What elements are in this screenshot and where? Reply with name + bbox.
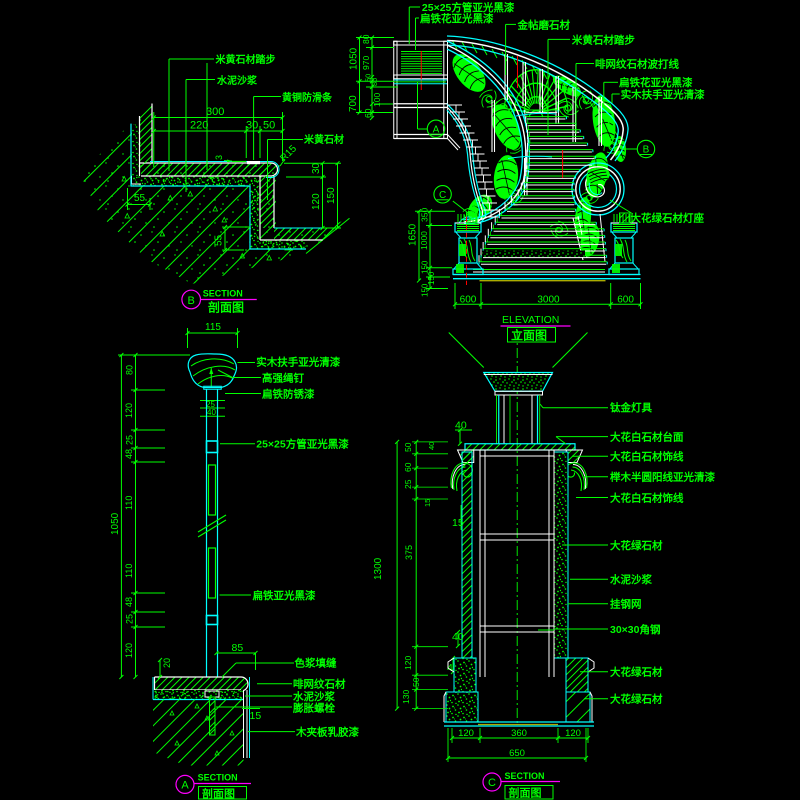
svg-text:60: 60 [363,108,373,118]
svg-text:米黄石材: 米黄石材 [304,133,344,146]
svg-text:40: 40 [207,408,216,417]
svg-text:啡网纹石材: 啡网纹石材 [293,678,346,691]
svg-text:A: A [433,124,440,135]
svg-text:120: 120 [565,728,581,739]
svg-text:大花绿石材: 大花绿石材 [610,666,663,679]
svg-text:130: 130 [401,690,411,704]
svg-text:48: 48 [124,449,134,459]
svg-text:大花绿石材灯座: 大花绿石材灯座 [631,212,705,225]
svg-text:大花绿石材: 大花绿石材 [610,539,663,552]
svg-text:120: 120 [124,643,134,658]
svg-text:剖面图: 剖面图 [208,300,244,315]
svg-text:25: 25 [125,614,135,624]
svg-text:挂钢网: 挂钢网 [610,598,642,611]
svg-text:C: C [488,777,496,789]
svg-text:350: 350 [420,208,430,222]
svg-text:1650: 1650 [408,223,419,246]
svg-text:50: 50 [411,677,421,687]
svg-text:600: 600 [617,295,634,306]
svg-text:40: 40 [427,442,436,450]
svg-text:25: 25 [403,479,413,489]
svg-text:水泥沙浆: 水泥沙浆 [292,690,335,703]
svg-text:110: 110 [124,564,134,578]
svg-text:扁铁花亚光黑漆: 扁铁花亚光黑漆 [420,12,494,25]
svg-text:15: 15 [423,499,432,507]
svg-text:扁铁花亚光黑漆: 扁铁花亚光黑漆 [619,76,693,89]
svg-text:150: 150 [427,271,436,285]
svg-text:扁铁亚光黑漆: 扁铁亚光黑漆 [253,589,316,602]
svg-text:SECTION: SECTION [198,773,238,783]
svg-text:钛金灯具: 钛金灯具 [610,401,652,414]
svg-text:剖面图: 剖面图 [509,786,542,800]
svg-text:ELEVATION: ELEVATION [502,314,559,326]
svg-text:膨胀螺栓: 膨胀螺栓 [293,702,335,715]
svg-text:55: 55 [134,193,146,204]
svg-text:600: 600 [460,295,477,306]
svg-text:80: 80 [125,365,135,375]
svg-text:大花白石材饰线: 大花白石材饰线 [610,450,684,463]
svg-text:120: 120 [311,193,322,210]
svg-text:15: 15 [250,710,262,722]
svg-text:高强绳钉: 高强绳钉 [262,372,304,385]
svg-text:水泥沙浆: 水泥沙浆 [216,74,258,87]
svg-text:A: A [181,780,189,792]
svg-text:48: 48 [124,597,134,607]
svg-text:100: 100 [372,93,382,107]
svg-text:25×25方管亚光黑漆: 25×25方管亚光黑漆 [256,438,349,451]
svg-text:C: C [439,190,446,201]
svg-text:25: 25 [125,435,135,445]
svg-text:B: B [643,145,650,156]
svg-text:1000: 1000 [419,231,429,250]
svg-text:SECTION: SECTION [203,289,243,299]
svg-text:80: 80 [361,34,371,44]
svg-text:120: 120 [124,403,134,418]
svg-text:60: 60 [403,462,413,472]
svg-text:110: 110 [124,496,134,510]
svg-text:3: 3 [214,155,224,160]
svg-text:650: 650 [509,748,525,759]
svg-text:啡网纹石材波打线: 啡网纹石材波打线 [595,58,679,71]
svg-text:970: 970 [361,56,371,70]
svg-text:大花白石材台面: 大花白石材台面 [610,431,684,444]
svg-text:米黄石材踏步: 米黄石材踏步 [571,34,635,47]
svg-text:剖面图: 剖面图 [202,787,235,800]
svg-text:375: 375 [404,545,414,560]
svg-text:220: 220 [190,120,208,132]
svg-text:30: 30 [246,120,258,132]
svg-text:大花绿石材: 大花绿石材 [610,693,663,706]
svg-text:20: 20 [162,658,172,668]
svg-text:85: 85 [232,642,244,654]
svg-text:色浆填缝: 色浆填缝 [295,657,337,670]
svg-text:120: 120 [403,656,413,670]
svg-text:扁铁防锈漆: 扁铁防锈漆 [262,388,315,401]
svg-text:30: 30 [311,162,322,174]
svg-text:3000: 3000 [537,295,560,306]
svg-text:50: 50 [403,442,413,452]
svg-text:80: 80 [370,78,379,86]
svg-text:150: 150 [326,187,337,204]
svg-text:50: 50 [263,120,275,132]
svg-text:700: 700 [348,95,359,112]
svg-text:金帖磨石材: 金帖磨石材 [517,19,571,32]
svg-text:150: 150 [421,283,430,297]
svg-text:黄铜防滑条: 黄铜防滑条 [282,91,333,104]
svg-text:15: 15 [452,517,464,529]
svg-text:55: 55 [214,234,225,246]
svg-text:水泥沙浆: 水泥沙浆 [609,573,652,586]
svg-text:木夹板乳胶漆: 木夹板乳胶漆 [295,726,359,739]
svg-text:实木扶手亚光清漆: 实木扶手亚光清漆 [256,356,340,369]
svg-text:30×30角钢: 30×30角钢 [610,623,661,636]
svg-text:大花白石材饰线: 大花白石材饰线 [610,492,684,505]
svg-text:1300: 1300 [373,557,384,580]
svg-text:米黄石材踏步: 米黄石材踏步 [216,53,276,66]
svg-text:360: 360 [511,728,527,739]
svg-text:115: 115 [205,322,221,333]
svg-text:B: B [188,295,195,307]
svg-text:120: 120 [458,728,474,739]
svg-text:1050: 1050 [349,47,360,70]
svg-text:立面图: 立面图 [511,328,547,343]
svg-text:榉木半圆阳线亚光清漆: 榉木半圆阳线亚光清漆 [610,471,715,484]
svg-text:300: 300 [206,106,224,118]
svg-text:SECTION: SECTION [505,771,545,781]
svg-text:1050: 1050 [110,512,121,535]
svg-text:实木扶手亚光清漆: 实木扶手亚光清漆 [621,88,705,101]
